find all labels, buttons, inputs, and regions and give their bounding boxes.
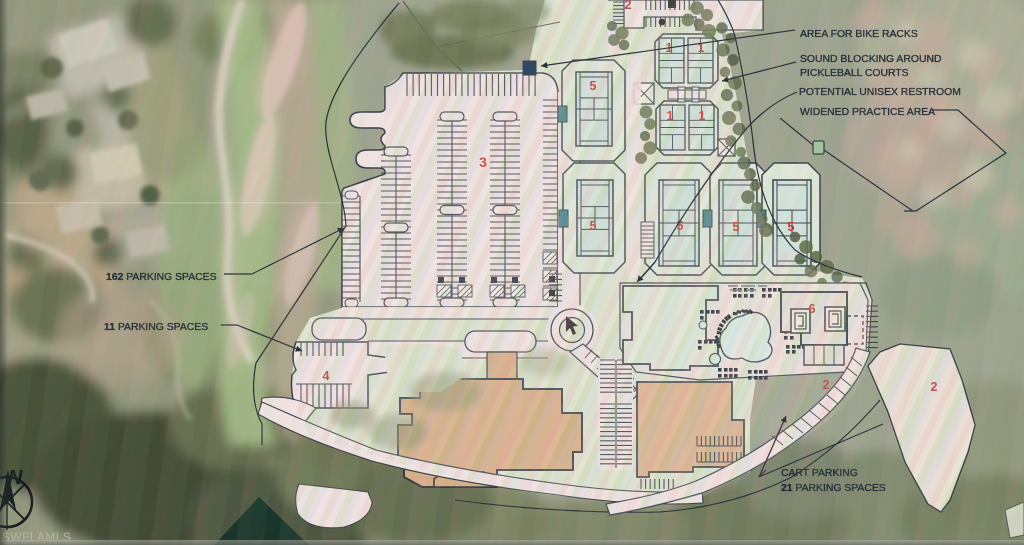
svg-text:WIDENED PRACTICE AREA: WIDENED PRACTICE AREA (800, 107, 935, 118)
svg-text:AREA FOR BIKE RACKS: AREA FOR BIKE RACKS (800, 29, 918, 40)
svg-text:21 PARKING SPACES: 21 PARKING SPACES (781, 483, 886, 494)
svg-text:PICKLEBALL COURTS: PICKLEBALL COURTS (800, 68, 909, 79)
svg-text:162 PARKING SPACES: 162 PARKING SPACES (106, 272, 217, 283)
svg-text:SWFLAMLS: SWFLAMLS (2, 530, 71, 544)
svg-text:5: 5 (788, 220, 795, 234)
svg-text:N: N (8, 467, 23, 489)
svg-text:CART PARKING: CART PARKING (781, 468, 858, 479)
svg-text:SOUND BLOCKING AROUND: SOUND BLOCKING AROUND (800, 54, 941, 65)
svg-text:11 PARKING SPACES: 11 PARKING SPACES (104, 322, 208, 333)
svg-text:POTENTIAL UNISEX RESTROOM: POTENTIAL UNISEX RESTROOM (799, 87, 961, 98)
